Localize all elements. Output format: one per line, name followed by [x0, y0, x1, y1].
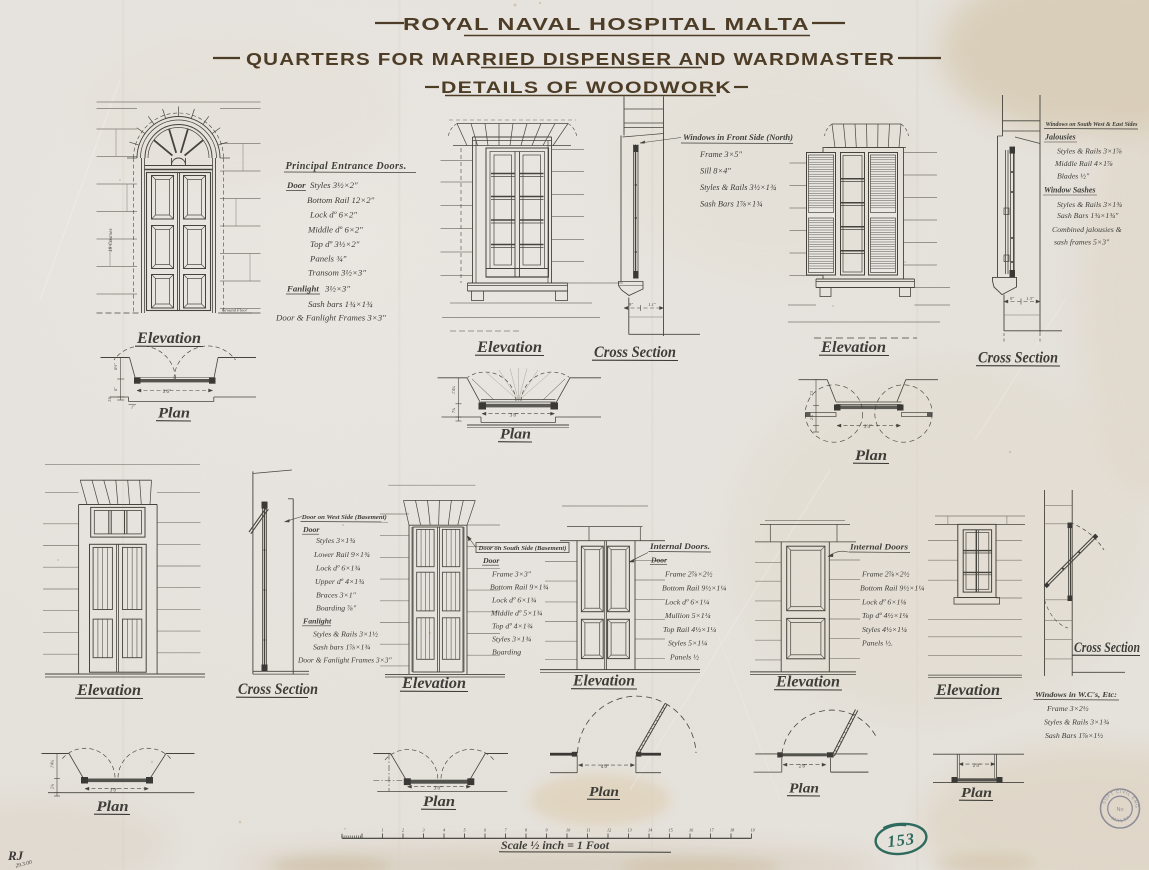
- svg-text:Blades ½″: Blades ½″: [1057, 172, 1090, 181]
- svg-text:15: 15: [669, 828, 673, 833]
- svg-text:RJ: RJ: [7, 848, 24, 863]
- svg-text:6″: 6″: [113, 387, 118, 391]
- svg-text:Plan: Plan: [158, 406, 190, 422]
- svg-text:Sash bars 1¾×1¾: Sash bars 1¾×1¾: [308, 299, 373, 309]
- svg-text:Door & Fanlight Frames 3×3″: Door & Fanlight Frames 3×3″: [275, 313, 386, 323]
- svg-text:3'0″: 3'0″: [434, 787, 443, 792]
- svg-text:1.3″: 1.3″: [1026, 296, 1034, 301]
- svg-text:Elevation: Elevation: [136, 330, 201, 347]
- svg-text:Plan: Plan: [589, 785, 619, 800]
- svg-text:sash frames 5×3″: sash frames 5×3″: [1054, 238, 1110, 247]
- svg-text:Scale ½ inch = 1 Foot: Scale ½ inch = 1 Foot: [501, 840, 610, 852]
- svg-text:2: 2: [402, 828, 404, 833]
- svg-text:Windows in W.C's, Etc:: Windows in W.C's, Etc:: [1035, 690, 1117, 699]
- svg-text:2¾: 2¾: [50, 784, 55, 789]
- svg-text:3½×3″: 3½×3″: [324, 284, 350, 294]
- svg-text:DETAILS OF WOODWORK: DETAILS OF WOODWORK: [441, 79, 732, 97]
- svg-text:Lower Rail 9×1¾: Lower Rail 9×1¾: [313, 550, 370, 559]
- svg-text:Frame 3×5″: Frame 3×5″: [699, 150, 742, 159]
- svg-text:Fanlight: Fanlight: [303, 617, 332, 626]
- svg-text:1″: 1″: [131, 405, 135, 410]
- svg-text:Principal Entrance Doors.: Principal Entrance Doors.: [286, 161, 407, 172]
- svg-text:Elevation: Elevation: [820, 339, 886, 356]
- svg-text:Elevation: Elevation: [935, 682, 1000, 699]
- svg-text:Boarding: Boarding: [492, 648, 521, 657]
- svg-text:Window Sashes: Window Sashes: [1044, 186, 1096, 195]
- svg-text:Elevation: Elevation: [401, 675, 466, 692]
- svg-text:Combined jalousies &: Combined jalousies &: [1052, 225, 1123, 234]
- svg-text:Styles 3½×2″: Styles 3½×2″: [310, 180, 358, 190]
- svg-text:Door: Door: [482, 556, 500, 565]
- svg-text:1: 1: [382, 828, 384, 833]
- svg-text:Ground Floor: Ground Floor: [222, 308, 247, 313]
- svg-text:Top dº 4×1¾: Top dº 4×1¾: [492, 622, 533, 631]
- svg-text:Lock dº 6×2″: Lock dº 6×2″: [309, 210, 357, 220]
- svg-text:Elevation: Elevation: [775, 674, 840, 691]
- svg-text:11: 11: [587, 828, 591, 833]
- svg-text:12: 12: [607, 828, 611, 833]
- svg-text:Top dº 3½×2″: Top dº 3½×2″: [310, 239, 360, 249]
- svg-text:3'6″: 3'6″: [163, 390, 172, 395]
- svg-text:Plan: Plan: [500, 427, 531, 443]
- svg-text:3'6″: 3'6″: [510, 414, 519, 419]
- svg-text:Plan: Plan: [855, 448, 887, 464]
- svg-text:Middle dº 6×2″: Middle dº 6×2″: [307, 225, 363, 235]
- svg-text:Transom 3½×3″: Transom 3½×3″: [308, 268, 366, 278]
- svg-text:14: 14: [648, 828, 652, 833]
- svg-text:Bottom Rail 12×2″: Bottom Rail 12×2″: [307, 195, 375, 205]
- svg-text:Panels ½: Panels ½: [669, 653, 699, 662]
- svg-text:Middle dº 5×1¾: Middle dº 5×1¾: [490, 609, 542, 618]
- svg-text:Styles 3×1¾: Styles 3×1¾: [492, 635, 531, 644]
- svg-text:5: 5: [464, 828, 466, 833]
- svg-text:Internal Doors.: Internal Doors.: [649, 542, 710, 551]
- svg-text:ROYAL NAVAL HOSPITAL MALTA: ROYAL NAVAL HOSPITAL MALTA: [403, 14, 810, 34]
- svg-text:Cross Section: Cross Section: [238, 681, 318, 698]
- svg-text:13: 13: [628, 828, 632, 833]
- svg-text:1'4¾: 1'4¾: [451, 386, 456, 394]
- svg-text:QUARTERS FOR MARRIED DISPENSER: QUARTERS FOR MARRIED DISPENSER AND WARDM…: [246, 49, 895, 69]
- svg-text:2'6″: 2'6″: [799, 764, 808, 769]
- svg-text:Mullion 5×1¼: Mullion 5×1¼: [664, 611, 711, 620]
- svg-text:Door on South Side (Basement): Door on South Side (Basement): [477, 545, 566, 552]
- svg-text:1'4¾: 1'4¾: [50, 760, 55, 768]
- svg-text:Cross Section: Cross Section: [1074, 640, 1140, 656]
- svg-text:Upper dº 4×1¾: Upper dº 4×1¾: [315, 577, 364, 586]
- svg-text:Braces 3×1″: Braces 3×1″: [316, 591, 357, 600]
- svg-text:Sash Bars 1⅞×1¾: Sash Bars 1⅞×1¾: [700, 200, 763, 209]
- svg-text:Styles & Rails 3×1½: Styles & Rails 3×1½: [313, 630, 378, 639]
- svg-text:Elevation: Elevation: [76, 682, 141, 699]
- svg-text:2¾: 2¾: [809, 415, 814, 420]
- svg-text:Elevation: Elevation: [572, 673, 635, 690]
- svg-text:Frame 2⅞×2½: Frame 2⅞×2½: [664, 570, 713, 579]
- svg-text:Fanlight: Fanlight: [286, 284, 319, 294]
- svg-text:Bottom Rail 9½×1¼: Bottom Rail 9½×1¼: [662, 584, 726, 593]
- svg-text:Top dº 4½×1⅛: Top dº 4½×1⅛: [862, 611, 909, 620]
- svg-text:Styles 4½×1¼: Styles 4½×1¼: [862, 625, 907, 634]
- svg-text:2'0″: 2'0″: [973, 764, 982, 769]
- svg-text:1.1″: 1.1″: [648, 302, 656, 307]
- svg-text:Windows in Front Side (North): Windows in Front Side (North): [683, 132, 793, 142]
- svg-text:Door: Door: [302, 525, 320, 534]
- svg-text:Lock dº 6×1¼: Lock dº 6×1¼: [664, 598, 709, 607]
- svg-text:Styles 5×1¼: Styles 5×1¼: [668, 639, 707, 648]
- svg-text:Styles 3×1¾: Styles 3×1¾: [316, 536, 355, 545]
- svg-text:Lock dº 6×1¾: Lock dº 6×1¾: [491, 596, 536, 605]
- svg-text:Jalousies: Jalousies: [1044, 133, 1076, 142]
- svg-text:4: 4: [443, 828, 445, 833]
- svg-text:Sash Bars 1¾×1¾″: Sash Bars 1¾×1¾″: [1057, 211, 1119, 220]
- svg-text:Plan: Plan: [97, 799, 129, 815]
- svg-text:No: No: [1116, 807, 1123, 813]
- svg-text:Plan: Plan: [423, 794, 455, 810]
- svg-text:9″: 9″: [629, 302, 633, 307]
- svg-text:1'3: 1'3: [809, 391, 814, 396]
- svg-text:18 Courses: 18 Courses: [108, 229, 114, 253]
- svg-text:Styles & Rails 3×1¾: Styles & Rails 3×1¾: [1057, 200, 1122, 209]
- svg-text:Door & Fanlight Frames 3×3″: Door & Fanlight Frames 3×3″: [297, 656, 392, 665]
- svg-text:4'0″: 4'0″: [601, 765, 610, 770]
- svg-text:3'4″: 3'4″: [864, 425, 873, 430]
- svg-text:Cross Section: Cross Section: [978, 350, 1058, 367]
- svg-text:Internal Doors: Internal Doors: [849, 543, 908, 552]
- svg-text:7¾: 7¾: [451, 408, 456, 413]
- svg-text:Door: Door: [286, 180, 306, 190]
- svg-text:Panels ¾″: Panels ¾″: [309, 254, 347, 264]
- svg-text:6½″: 6½″: [113, 363, 118, 370]
- svg-text:Door: Door: [650, 556, 668, 565]
- svg-text:Plan: Plan: [961, 786, 992, 801]
- svg-text:Panels ½.: Panels ½.: [861, 639, 893, 648]
- svg-text:Sill 8×4″: Sill 8×4″: [700, 167, 731, 176]
- svg-text:9″: 9″: [1010, 296, 1014, 301]
- svg-text:Styles & Rails 3½×1¾: Styles & Rails 3½×1¾: [700, 183, 777, 192]
- svg-text:Bottom Rail 9½×1¼: Bottom Rail 9½×1¼: [860, 584, 924, 593]
- svg-text:Frame 3×3″: Frame 3×3″: [491, 570, 532, 579]
- svg-text:Bottom Rail 9×1¾: Bottom Rail 9×1¾: [490, 583, 548, 592]
- svg-text:Frame 2⅞×2½: Frame 2⅞×2½: [861, 570, 910, 579]
- svg-text:Boarding ⅞″: Boarding ⅞″: [316, 604, 357, 613]
- svg-text:Windows on South West & East S: Windows on South West & East Sides: [1046, 121, 1138, 128]
- svg-text:Plan: Plan: [789, 782, 819, 797]
- svg-text:Frame 3×2½: Frame 3×2½: [1046, 704, 1089, 713]
- svg-text:3: 3: [423, 828, 425, 833]
- svg-text:Door on West Side (Basement): Door on West Side (Basement): [301, 514, 387, 521]
- svg-text:Top Rail 4½×1¼: Top Rail 4½×1¼: [663, 625, 716, 634]
- svg-text:Elevation: Elevation: [476, 339, 542, 356]
- svg-text:Styles & Rails 3×1⅞: Styles & Rails 3×1⅞: [1057, 147, 1122, 156]
- svg-text:Middle Rail 4×1⅞: Middle Rail 4×1⅞: [1054, 159, 1113, 168]
- svg-text:Cross Section: Cross Section: [594, 344, 676, 361]
- svg-text:Sash bars 1⅞×1¾: Sash bars 1⅞×1¾: [313, 643, 370, 652]
- svg-text:Lock dº 6×1⅛: Lock dº 6×1⅛: [861, 598, 906, 607]
- svg-text:153: 153: [886, 829, 916, 851]
- svg-text:Sash Bars 1⅞×1½: Sash Bars 1⅞×1½: [1045, 731, 1103, 740]
- svg-text:Lock dº 6×1¾: Lock dº 6×1¾: [315, 564, 360, 573]
- svg-text:Styles & Rails 3×1¾: Styles & Rails 3×1¾: [1044, 718, 1109, 727]
